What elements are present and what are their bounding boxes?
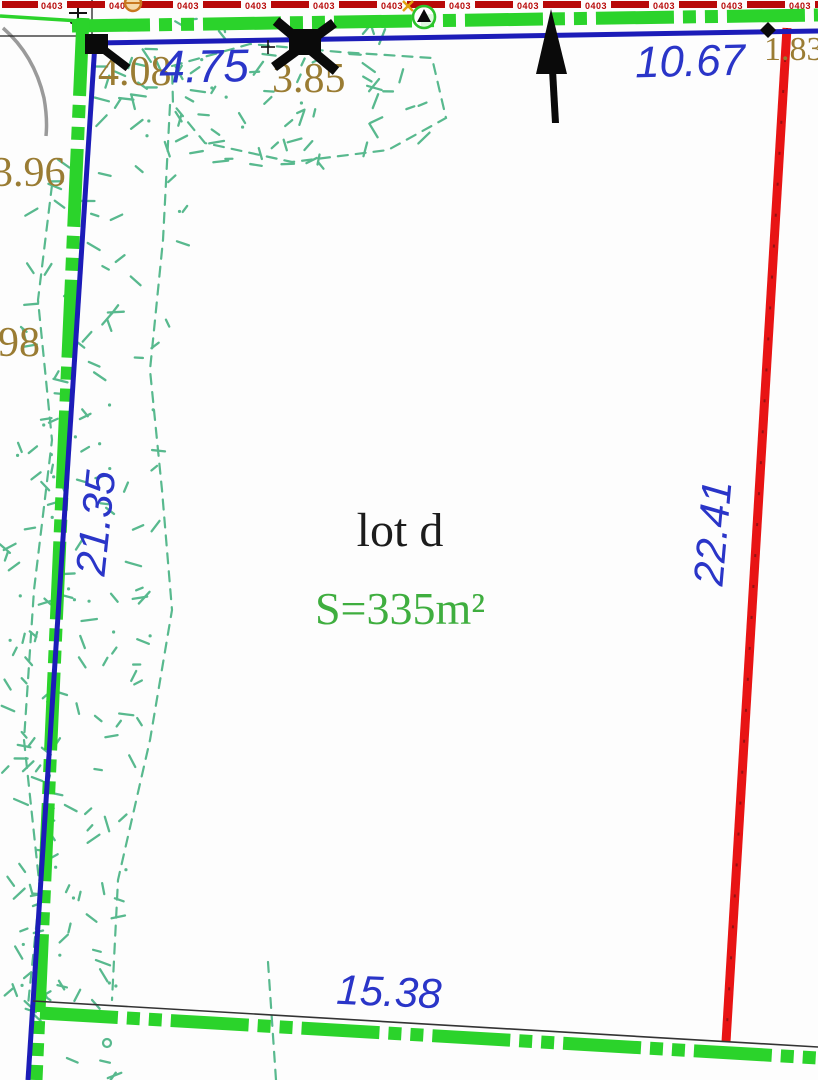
vegetation-dash [131, 95, 134, 109]
vegetation-dash [264, 97, 271, 104]
dim-west: 21.35 [67, 468, 125, 579]
vegetation-dot [72, 896, 75, 899]
vegetation-dash [183, 206, 187, 212]
vegetation-dash [131, 120, 142, 129]
vegetation-dot [145, 134, 148, 137]
utility-line-label: 0403 [41, 1, 63, 11]
vegetation-dash [399, 69, 403, 82]
vegetation-dash [250, 164, 262, 166]
vegetation-dash [14, 889, 25, 899]
vegetation-dot [54, 866, 57, 869]
utility-line-dash [271, 1, 309, 8]
vegetation-dash [134, 680, 142, 684]
vegetation-dot [9, 639, 12, 642]
lot-name-label: lot d [357, 504, 444, 557]
vegetation-dot [178, 210, 181, 213]
vegetation-dash [176, 136, 187, 142]
utility-line-dash [679, 1, 717, 8]
vegetation-dash [136, 166, 143, 172]
vegetation-dash [20, 929, 27, 932]
dim-top-east: 10.67 [634, 36, 747, 88]
vegetation-dot [108, 467, 111, 470]
vegetation-dash [79, 892, 81, 900]
vegetation-dash [112, 648, 116, 654]
cadastral-boundary-north [72, 15, 818, 26]
vegetation-dash [4, 680, 10, 690]
vegetation-dash [272, 143, 278, 149]
utility-line-label: 0403 [517, 1, 539, 11]
vegetation-dash [28, 738, 34, 746]
vegetation-dash [299, 111, 304, 125]
utility-line-dash [2, 1, 38, 8]
vegetation-dash [9, 563, 19, 571]
vegetation-dash [25, 528, 35, 530]
vegetation-dash [137, 639, 149, 644]
vegetation-dash [239, 113, 245, 123]
vegetation-dash [83, 332, 92, 342]
utility-line-label: 0403 [449, 1, 471, 11]
vegetation-dash [363, 63, 375, 72]
vegetation-dash [74, 990, 80, 1001]
vegetation-dot [20, 984, 23, 987]
vegetation-dot [147, 119, 150, 122]
vegetation-dash [116, 255, 125, 262]
vegetation-dash [117, 721, 121, 727]
vegetation-dash [79, 657, 86, 667]
spot-value-w-lower: 98 [0, 320, 40, 366]
vegetation-dash [137, 718, 142, 725]
vegetation-dash [81, 619, 96, 621]
vegetation-dash [406, 106, 414, 109]
vegetation-dash [7, 877, 14, 886]
vegetation-dash [60, 935, 68, 943]
vegetation-dash [55, 201, 65, 208]
vegetation-dot [98, 442, 101, 445]
vegetation-dash [24, 304, 38, 305]
vegetation-dash [94, 769, 101, 770]
vegetation-dash [95, 716, 102, 721]
vegetation-dash [95, 98, 109, 102]
vegetation-dot [241, 125, 244, 128]
vegetation-dash [107, 320, 111, 331]
vegetation-dot [124, 868, 127, 871]
vegetation-dash [18, 443, 22, 452]
vegetation-dash [87, 914, 97, 921]
vegetation-dash [66, 885, 69, 892]
vegetation-dash [27, 263, 33, 273]
vegetation-dash [67, 1058, 78, 1062]
vegetation-dash [190, 151, 203, 153]
vegetation-dash [373, 94, 378, 108]
spot-value-w-upper: 3.96 [0, 150, 66, 196]
vegetation-dash [23, 634, 25, 643]
utility-line-dash [67, 1, 105, 8]
vegetation-dash [76, 703, 79, 714]
green-line-thin [0, 16, 80, 21]
survey-point-circle-icon [413, 6, 435, 28]
utility-line-label: 0403 [245, 1, 267, 11]
vegetation-dash [115, 98, 121, 107]
vegetation-dash [119, 98, 133, 100]
vegetation-dash [13, 648, 17, 655]
utility-line-label: 0403 [653, 1, 675, 11]
utility-line-label: 0403 [721, 1, 743, 11]
vegetation-dash [198, 114, 208, 115]
vegetation-dash [212, 129, 220, 134]
lot-area-label: S=335m² [315, 583, 485, 634]
cadastral-boundary-south [40, 1013, 818, 1058]
spot-value-ne: 1.83 [764, 31, 818, 68]
utility-line-label: 0403 [585, 1, 607, 11]
vegetation-dash [285, 120, 292, 126]
vegetation-dash [151, 466, 157, 471]
vegetation-dash [31, 472, 40, 479]
vegetation-dash [259, 148, 262, 159]
vegetation-dash [88, 243, 100, 250]
vegetation-dash [25, 209, 37, 216]
vegetation-dot [108, 403, 111, 406]
utility-line-label: 0403 [177, 1, 199, 11]
vegetation-dot [58, 954, 61, 957]
vegetation-dash [5, 553, 8, 561]
manhole-circle-icon [125, 0, 141, 11]
vegetation-dot [87, 600, 90, 603]
vegetation-dash [65, 805, 77, 811]
vegetation-dot [112, 630, 115, 633]
vegetation-dash [81, 447, 89, 452]
vegetation-dash [419, 103, 427, 106]
vegetation-dash [15, 946, 22, 958]
utility-line-dash [747, 1, 785, 8]
vegetation-dash [30, 885, 33, 895]
vegetation-dash [13, 984, 17, 996]
vegetation-dash [133, 525, 143, 529]
vegetation-dash [100, 969, 107, 981]
vegetation-dash [112, 916, 125, 919]
vegetation-dash [370, 117, 382, 123]
vegetation-dot [16, 454, 19, 457]
vegetation-dash [369, 124, 377, 138]
vegetation-dash [82, 409, 88, 416]
vegetation-dash [288, 139, 302, 143]
vegetation-dot [149, 634, 152, 637]
dim-south: 15.38 [335, 966, 443, 1018]
vegetation-dot [22, 943, 25, 946]
utility-line-dash [611, 1, 649, 8]
vegetation-dash [2, 766, 8, 772]
vegetation-dash [25, 1001, 31, 1007]
vegetation-dash [313, 109, 315, 116]
vegetation-dash [93, 950, 101, 952]
vegetation-dot [114, 984, 117, 987]
vegetation-dash [5, 989, 13, 996]
vegetation-dash [96, 115, 106, 126]
vegetation-dash [102, 883, 104, 894]
vegetation-dash [36, 765, 40, 771]
vegetation-dash [131, 671, 136, 681]
utility-line-dash [203, 1, 241, 8]
vegetation-dash [152, 521, 160, 531]
dim-top-west: 4.75 [159, 39, 250, 93]
vegetation-dash [131, 276, 141, 285]
vegetation-dash [29, 446, 37, 453]
vegetation-dash [51, 465, 53, 473]
vegetation-dot [42, 423, 45, 426]
road-edge-curve [3, 28, 47, 136]
vegetation-dash [209, 141, 224, 143]
vegetation-dash [129, 755, 135, 767]
vegetation-dash [96, 960, 110, 965]
vegetation-dot [73, 598, 76, 601]
vegetation-dash [23, 761, 33, 771]
cadastral-plan: 0403040304030403040304030403040304030403… [0, 0, 818, 1080]
vegetation-dash [19, 864, 25, 872]
vegetation-dash [124, 483, 128, 492]
vegetation-dash [105, 817, 109, 832]
north-arrow-icon [536, 9, 567, 123]
vegetation-dash [166, 320, 169, 327]
vegetation-dot [19, 594, 22, 597]
vegetation-dash [304, 141, 312, 150]
vegetation-dash [100, 1060, 110, 1062]
vegetation-dash [284, 140, 287, 151]
vegetation-dash [89, 362, 100, 367]
utility-line-label: 0403 [313, 1, 335, 11]
vegetation-dash [85, 808, 91, 814]
vegetation-dash [2, 706, 15, 711]
vegetation-dot [67, 587, 70, 590]
utility-line-dash [475, 1, 513, 8]
vegetation-dash [119, 713, 133, 715]
utility-line-dash [543, 1, 581, 8]
vegetation-dash [32, 777, 43, 781]
utility-line-dash [339, 1, 377, 8]
vegetation-dash [105, 735, 117, 737]
utility-line-label: 0403 [381, 1, 403, 11]
vegetation-dot [51, 516, 54, 519]
vegetation-dash [22, 678, 27, 683]
vegetation-dot [52, 475, 55, 478]
vegetation-dash [45, 264, 52, 275]
vegetation-dash [91, 214, 98, 216]
vegetation-dash [88, 835, 100, 843]
vegetation-dash [363, 143, 367, 157]
vegetation-dash [111, 594, 118, 602]
vegetation-dash [168, 175, 175, 182]
vegetation-dash [136, 588, 143, 591]
vegetation-dash [126, 562, 141, 566]
vegetation-dot [225, 96, 228, 99]
vegetation-dash [119, 814, 126, 821]
vegetation-dash [177, 241, 189, 245]
vegetation-dash [94, 372, 105, 380]
vegetation-dash [111, 215, 122, 220]
cadastral-plan-canvas: 0403040304030403040304030403040304030403… [0, 0, 818, 1080]
vegetation-dash [186, 97, 193, 101]
vegetation-dash [14, 799, 28, 805]
vegetation-dash [213, 161, 228, 163]
vegetation-dash [68, 924, 70, 933]
vegetation-dash [99, 173, 111, 176]
vegetation-dash [80, 636, 85, 648]
vegetation-dash [418, 133, 429, 144]
vegetation-dash [88, 825, 93, 830]
vegetation-dot [74, 435, 77, 438]
dim-east: 22.41 [684, 479, 740, 589]
vegetation-dot [108, 981, 111, 984]
vegetation-dash [319, 163, 324, 169]
vegetation-dash [54, 371, 58, 378]
vegetation-dash [103, 658, 107, 665]
vegetation-dash [34, 1015, 41, 1021]
vegetation-dash [108, 312, 124, 313]
vegetation-dash [102, 266, 108, 269]
vegetation-dash [363, 77, 371, 82]
